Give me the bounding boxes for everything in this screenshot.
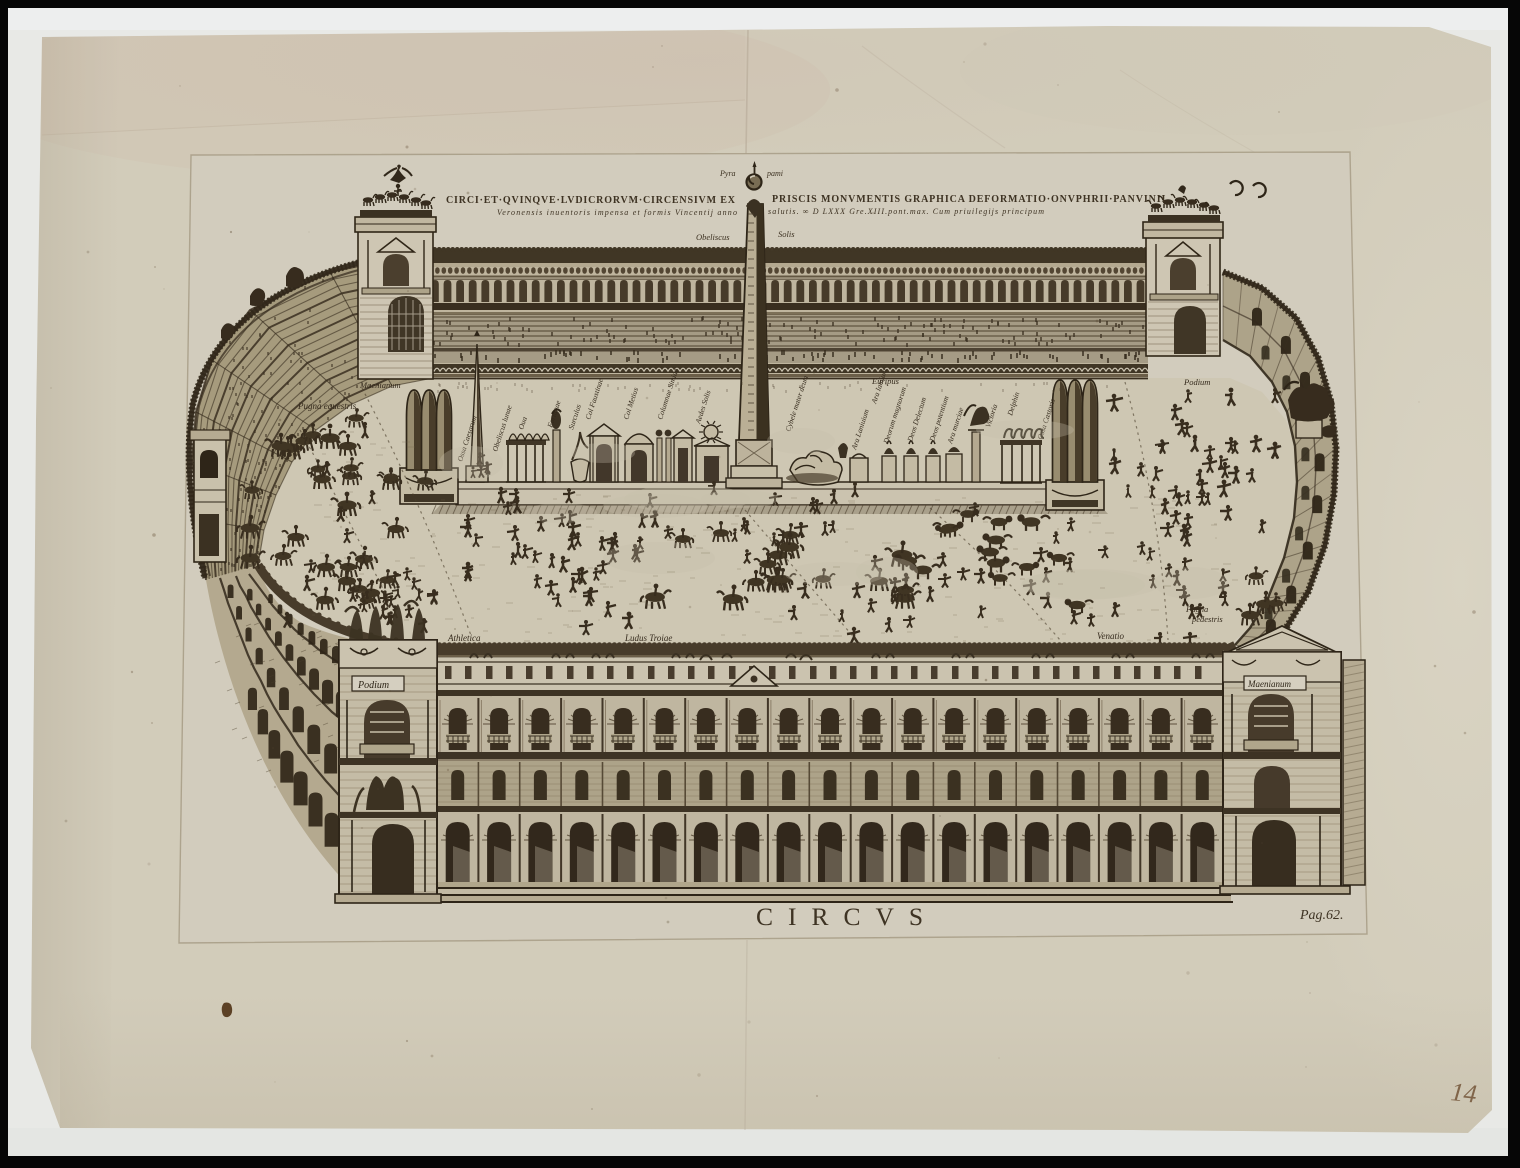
- svg-text:14: 14: [1449, 1077, 1478, 1109]
